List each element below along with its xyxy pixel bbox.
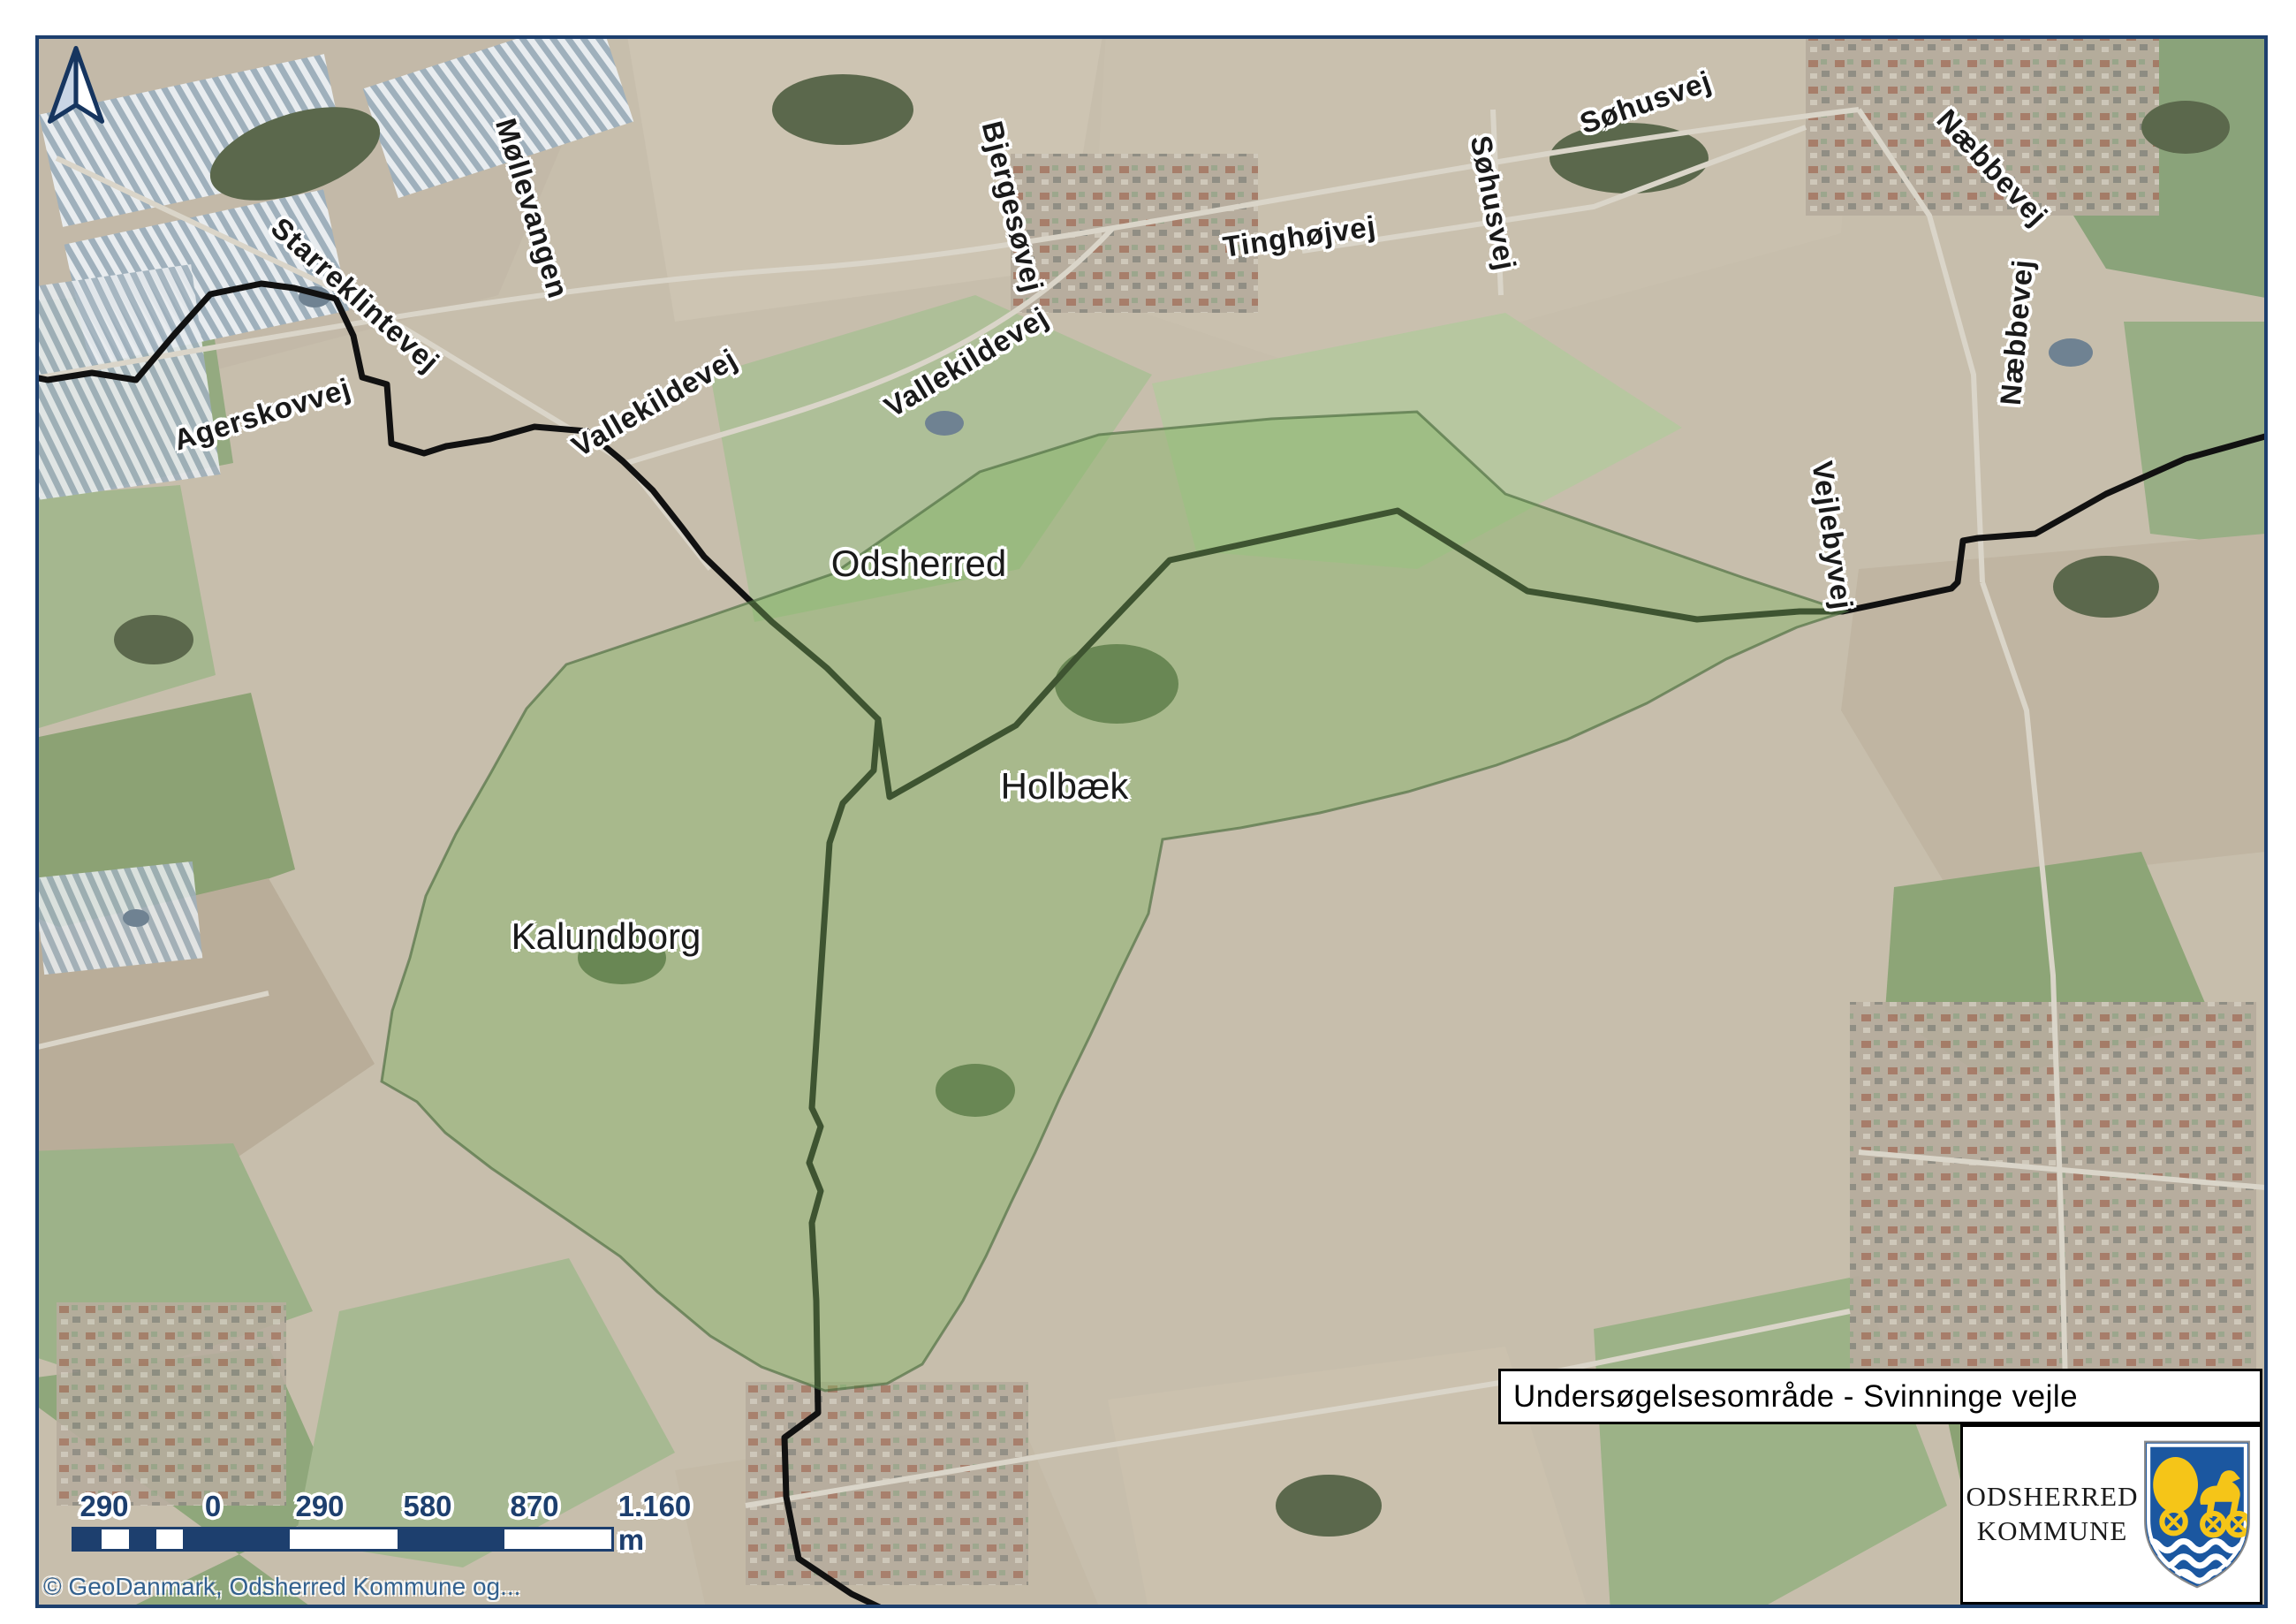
map-title-box: Undersøgelsesområde - Svinninge vejle (1498, 1369, 2262, 1424)
logo-text: ODSHERRED KOMMUNE (1963, 1480, 2141, 1549)
scale-tick-label: 290 (295, 1490, 344, 1523)
north-arrow-icon (42, 39, 110, 131)
scale-tick-label: 580 (403, 1490, 451, 1523)
logo-box: ODSHERRED KOMMUNE (1960, 1424, 2262, 1605)
map-canvas: Starreklintevej Agerskovvej Møllevangen … (35, 35, 2268, 1608)
map-title: Undersøgelsesområde - Svinninge vejle (1513, 1379, 2078, 1415)
logo-text-line1: ODSHERRED (1963, 1480, 2141, 1514)
logo-text-line2: KOMMUNE (1963, 1514, 2141, 1549)
scale-tick-label: 0 (205, 1490, 221, 1523)
scale-bar: 290 0 290 580 870 1.160 m (72, 1490, 690, 1552)
scale-bar-segments (72, 1527, 614, 1552)
municipality-label: Odsherred (831, 543, 1006, 585)
municipality-label: Kalundborg (511, 915, 701, 958)
scale-tick-label: 870 (510, 1490, 558, 1523)
municipality-label: Holbæk (1001, 765, 1129, 808)
attribution-text: © GeoDanmark, Odsherred Kommune og... (43, 1573, 520, 1601)
scale-tick-label: 1.160 m (618, 1490, 692, 1557)
map-document-page: Starreklintevej Agerskovvej Møllevangen … (0, 0, 2296, 1624)
odsherred-coat-of-arms-icon (2141, 1438, 2253, 1591)
scale-tick-label: 290 (80, 1490, 128, 1523)
